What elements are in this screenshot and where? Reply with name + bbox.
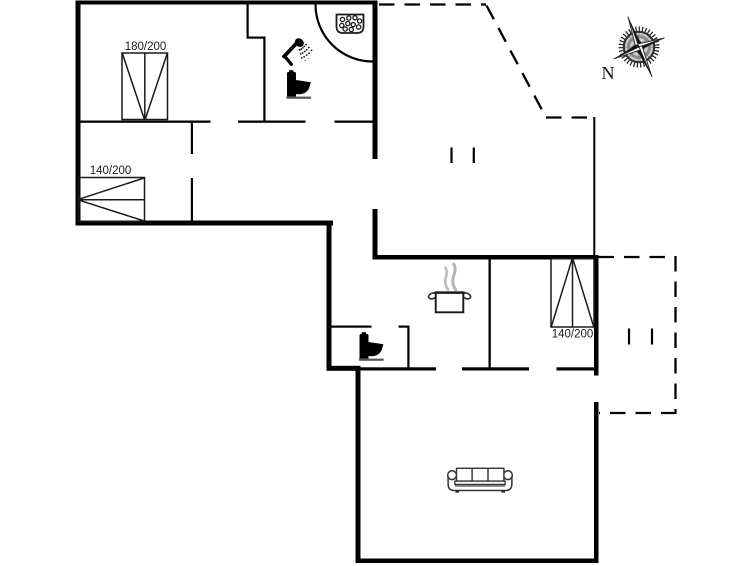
svg-text:180/200: 180/200 — [125, 41, 167, 53]
svg-text:N: N — [602, 63, 615, 83]
svg-text:140/200: 140/200 — [552, 329, 594, 341]
svg-text:140/200: 140/200 — [90, 165, 132, 177]
